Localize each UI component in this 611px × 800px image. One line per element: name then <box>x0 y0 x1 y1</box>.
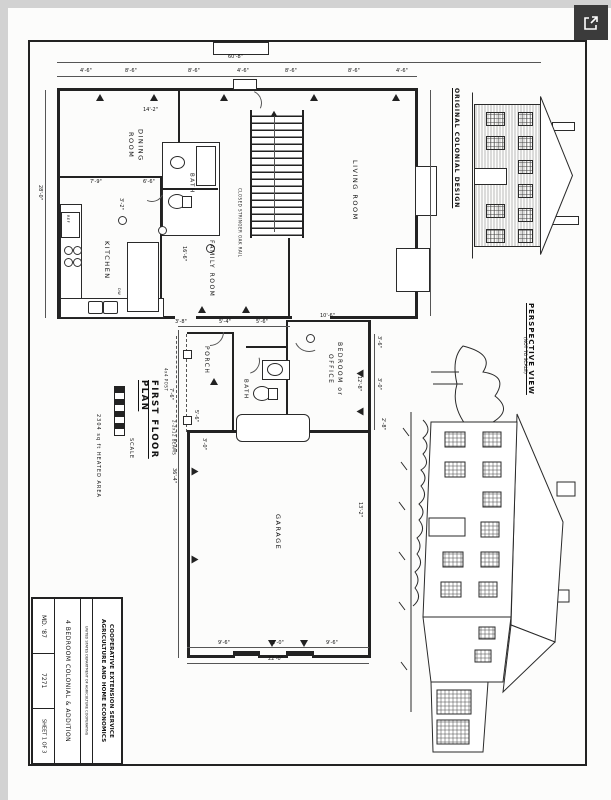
post-note: 4x4 POST <box>163 368 168 398</box>
dim-line <box>187 663 369 664</box>
dim-label: 10'-6" <box>320 314 335 319</box>
wall <box>288 238 290 318</box>
dim-line <box>187 647 369 648</box>
wall <box>330 316 418 319</box>
stair-rail-note: CLOSED STRINGER OAK RAIL <box>237 188 242 266</box>
sink <box>170 156 185 169</box>
kitchen-sink <box>103 301 118 314</box>
plan-title: FIRST FLOOR PLAN <box>139 380 159 480</box>
symbol-circle <box>118 216 127 225</box>
room-label-bath-lower: BATH <box>241 372 249 406</box>
window-symbol <box>357 408 364 416</box>
bathtub <box>236 414 310 442</box>
kitchen-sink <box>88 301 103 314</box>
dim-label: 13'-2" <box>357 502 362 517</box>
perspective-view-sketch <box>385 332 583 762</box>
window-symbol <box>392 94 400 101</box>
window-symbol <box>220 94 228 101</box>
wall <box>312 655 371 658</box>
dim-label: 12'-8" <box>356 376 361 391</box>
room-label-bedroom: BEDROOM or OFFICE <box>326 338 344 400</box>
dim-label: 8'-6" <box>125 69 137 74</box>
title-block-usda: UNITED STATES DEPARTMENT OF AGRICULTURE … <box>81 599 93 763</box>
window-symbol <box>242 306 250 313</box>
garage-door <box>233 651 260 656</box>
title-block-numbers: MD. '87 7271 SHEET 1 OF 3 <box>33 599 55 763</box>
window-symbol <box>198 306 206 313</box>
dim-line <box>178 330 179 658</box>
window-symbol <box>150 94 158 101</box>
dim-line <box>45 90 46 318</box>
dim-line <box>430 90 431 316</box>
window-symbol <box>192 556 199 564</box>
project-title: 4 BEDROOM COLONIAL & ADDITION <box>64 620 71 742</box>
closet <box>196 146 216 186</box>
dim-label: 3'-0" <box>201 438 206 450</box>
window-symbol <box>310 94 318 101</box>
dim-line <box>374 334 375 430</box>
dim-label: 60'-8" <box>228 55 243 60</box>
dim-label: 22'-0" <box>268 657 283 662</box>
refrigerator <box>61 212 80 238</box>
dim-label: 3'-0" <box>272 641 284 646</box>
wall <box>288 320 371 322</box>
entry-stoop <box>233 79 257 90</box>
dim-label: 5'-4" <box>219 320 231 325</box>
wall <box>57 176 162 178</box>
original-design-title: ORIGINAL COLONIAL DESIGN <box>453 88 460 224</box>
scale-bar <box>114 386 125 436</box>
drawing-number: 7271 <box>33 654 54 709</box>
wall <box>232 332 234 432</box>
dim-label: 8'-6" <box>285 69 297 74</box>
dim-label: 4'-6" <box>237 69 249 74</box>
wall <box>187 430 190 658</box>
room-label-family: FAMILY ROOM <box>207 238 216 300</box>
dim-line <box>57 62 541 63</box>
dim-label: 4'-6" <box>80 69 92 74</box>
room-label-living: LIVING ROOM <box>349 155 359 225</box>
scale-label: SCALE <box>128 438 134 468</box>
wall <box>368 320 371 432</box>
dim-label: 36'-4" <box>171 468 176 483</box>
room-label-dining: DINING ROOM <box>125 115 145 175</box>
open-in-new-icon <box>581 13 601 33</box>
burner <box>73 258 82 267</box>
dim-label: 3'-0" <box>376 378 381 390</box>
dishwasher-label: DW <box>117 288 121 295</box>
dim-label: 5'-6" <box>256 320 268 325</box>
dim-label: 16'-6" <box>181 246 186 261</box>
wall <box>368 430 371 658</box>
usda-line: UNITED STATES DEPARTMENT OF AGRICULTURE … <box>85 626 89 735</box>
title-block-project: 4 BEDROOM COLONIAL & ADDITION <box>55 599 81 763</box>
dim-label: 9'-6" <box>326 641 338 646</box>
staircase <box>250 110 304 238</box>
dim-label: 3'-6" <box>376 336 381 348</box>
sheet-number: SHEET 1 OF 3 <box>33 709 54 763</box>
dim-label: 7'-9" <box>90 180 102 185</box>
garage-door <box>286 651 314 656</box>
bay-window <box>396 248 430 292</box>
room-label-porch: PORCH <box>202 338 211 382</box>
toilet-tank <box>268 388 278 400</box>
dim-line <box>57 76 417 77</box>
burner <box>64 258 73 267</box>
burner <box>64 246 73 255</box>
plan-number: MD. '87 <box>33 599 54 654</box>
open-in-new-button[interactable] <box>574 5 608 40</box>
burner <box>73 246 82 255</box>
window-symbol <box>96 94 104 101</box>
dim-label: 7'-6" <box>168 388 173 400</box>
dim-label: 6'-6" <box>143 180 155 185</box>
symbol-circle <box>158 226 167 235</box>
porch-post <box>183 416 192 425</box>
kitchen-peninsula <box>127 242 159 312</box>
symbol-circle <box>306 334 315 343</box>
stair-rail-line <box>274 116 275 232</box>
fireplace <box>415 166 437 216</box>
dim-label: 28'-0" <box>37 185 42 200</box>
stair-direction-arrow <box>271 111 277 117</box>
window-symbol <box>300 640 308 647</box>
dim-label: 9'-6" <box>218 641 230 646</box>
dim-label: 3'-8" <box>175 320 187 325</box>
window-symbol <box>192 468 199 476</box>
heated-area-label: 2304 sq ft HEATED AREA <box>95 414 101 510</box>
dim-label: 14'-2" <box>143 108 158 113</box>
perspective-title: PERSPECTIVE VIEW <box>527 294 535 404</box>
dim-label: 3'-2" <box>118 198 123 210</box>
beam-note: 2-2x12 BEAMS <box>171 420 176 462</box>
dim-label: 8'-6" <box>188 69 200 74</box>
room-label-bath-upper: BATH <box>187 166 195 200</box>
document-viewer: REF DW 60'-8" 4'-6" 8'-6" 8'-6" 4'-6" 8'… <box>0 0 611 800</box>
dim-label: 4'-6" <box>396 69 408 74</box>
wall <box>187 655 235 658</box>
wall <box>246 346 286 348</box>
dim-label: 8'-6" <box>348 69 360 74</box>
porch-post <box>183 350 192 359</box>
refrigerator-label: REF <box>66 215 70 223</box>
room-label-garage: GARAGE <box>272 508 282 556</box>
sink <box>267 363 283 376</box>
dim-label: 5'-6" <box>193 410 198 422</box>
original-colonial-sketch <box>465 84 580 266</box>
dim-line <box>178 326 290 327</box>
title-block-org: COOPERATIVE EXTENSION SERVICE AGRICULTUR… <box>93 599 121 763</box>
room-label-kitchen: KITCHEN <box>101 232 111 288</box>
org-line-1: COOPERATIVE EXTENSION SERVICE <box>108 624 114 738</box>
wall <box>178 88 180 144</box>
perspective-title-group: PERSPECTIVE VIEW (NOT TO SCALE) <box>522 294 535 404</box>
title-block: MD. '87 7271 SHEET 1 OF 3 4 BEDROOM COLO… <box>31 597 123 765</box>
window-symbol <box>210 378 218 385</box>
org-line-2: AGRICULTURE AND HOME ECONOMICS <box>100 619 106 742</box>
